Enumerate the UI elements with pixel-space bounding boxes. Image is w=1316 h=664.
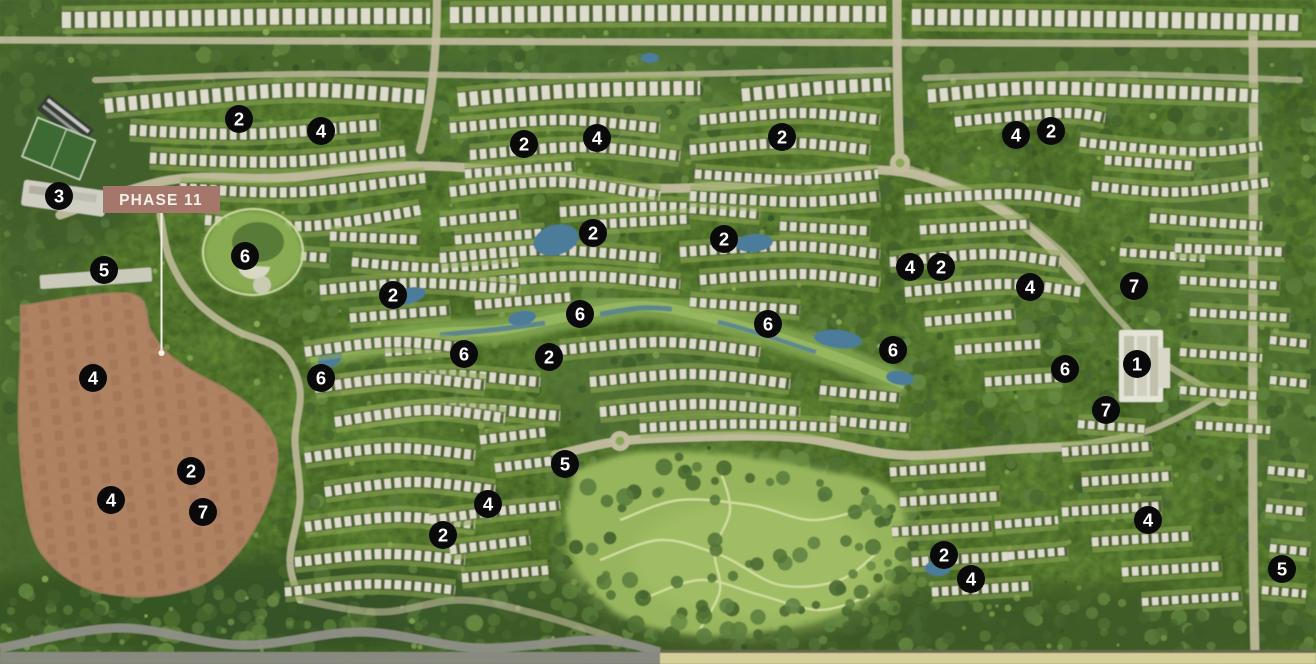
svg-text:4: 4 (966, 569, 977, 590)
svg-text:4: 4 (905, 257, 916, 278)
svg-text:2: 2 (777, 127, 787, 148)
svg-text:7: 7 (1129, 276, 1139, 297)
svg-text:5: 5 (560, 454, 570, 475)
svg-text:4: 4 (592, 128, 603, 149)
svg-text:7: 7 (198, 502, 208, 523)
svg-text:5: 5 (99, 260, 109, 281)
svg-text:2: 2 (588, 223, 598, 244)
svg-text:6: 6 (575, 304, 585, 325)
svg-text:2: 2 (186, 461, 196, 482)
svg-text:7: 7 (1101, 400, 1111, 421)
svg-text:6: 6 (240, 246, 250, 267)
svg-text:6: 6 (459, 344, 469, 365)
svg-text:2: 2 (519, 134, 529, 155)
svg-text:4: 4 (1011, 125, 1022, 146)
svg-text:2: 2 (936, 257, 946, 278)
svg-text:2: 2 (234, 109, 244, 130)
svg-text:2: 2 (719, 229, 729, 250)
svg-text:6: 6 (888, 340, 898, 361)
svg-text:2: 2 (438, 525, 448, 546)
svg-text:4: 4 (316, 121, 327, 142)
svg-text:2: 2 (939, 545, 949, 566)
svg-text:4: 4 (483, 494, 494, 515)
svg-text:2: 2 (544, 347, 554, 368)
svg-text:6: 6 (763, 314, 773, 335)
svg-text:6: 6 (316, 368, 326, 389)
svg-text:4: 4 (1025, 277, 1036, 298)
svg-text:1: 1 (1132, 354, 1142, 375)
svg-text:4: 4 (1143, 510, 1154, 531)
svg-text:6: 6 (1060, 359, 1070, 380)
svg-text:2: 2 (388, 285, 398, 306)
svg-text:2: 2 (1046, 121, 1056, 142)
svg-text:4: 4 (88, 368, 99, 389)
svg-text:5: 5 (1277, 559, 1287, 580)
svg-text:4: 4 (106, 490, 117, 511)
svg-text:PHASE 11: PHASE 11 (119, 192, 203, 209)
svg-text:3: 3 (54, 186, 64, 207)
